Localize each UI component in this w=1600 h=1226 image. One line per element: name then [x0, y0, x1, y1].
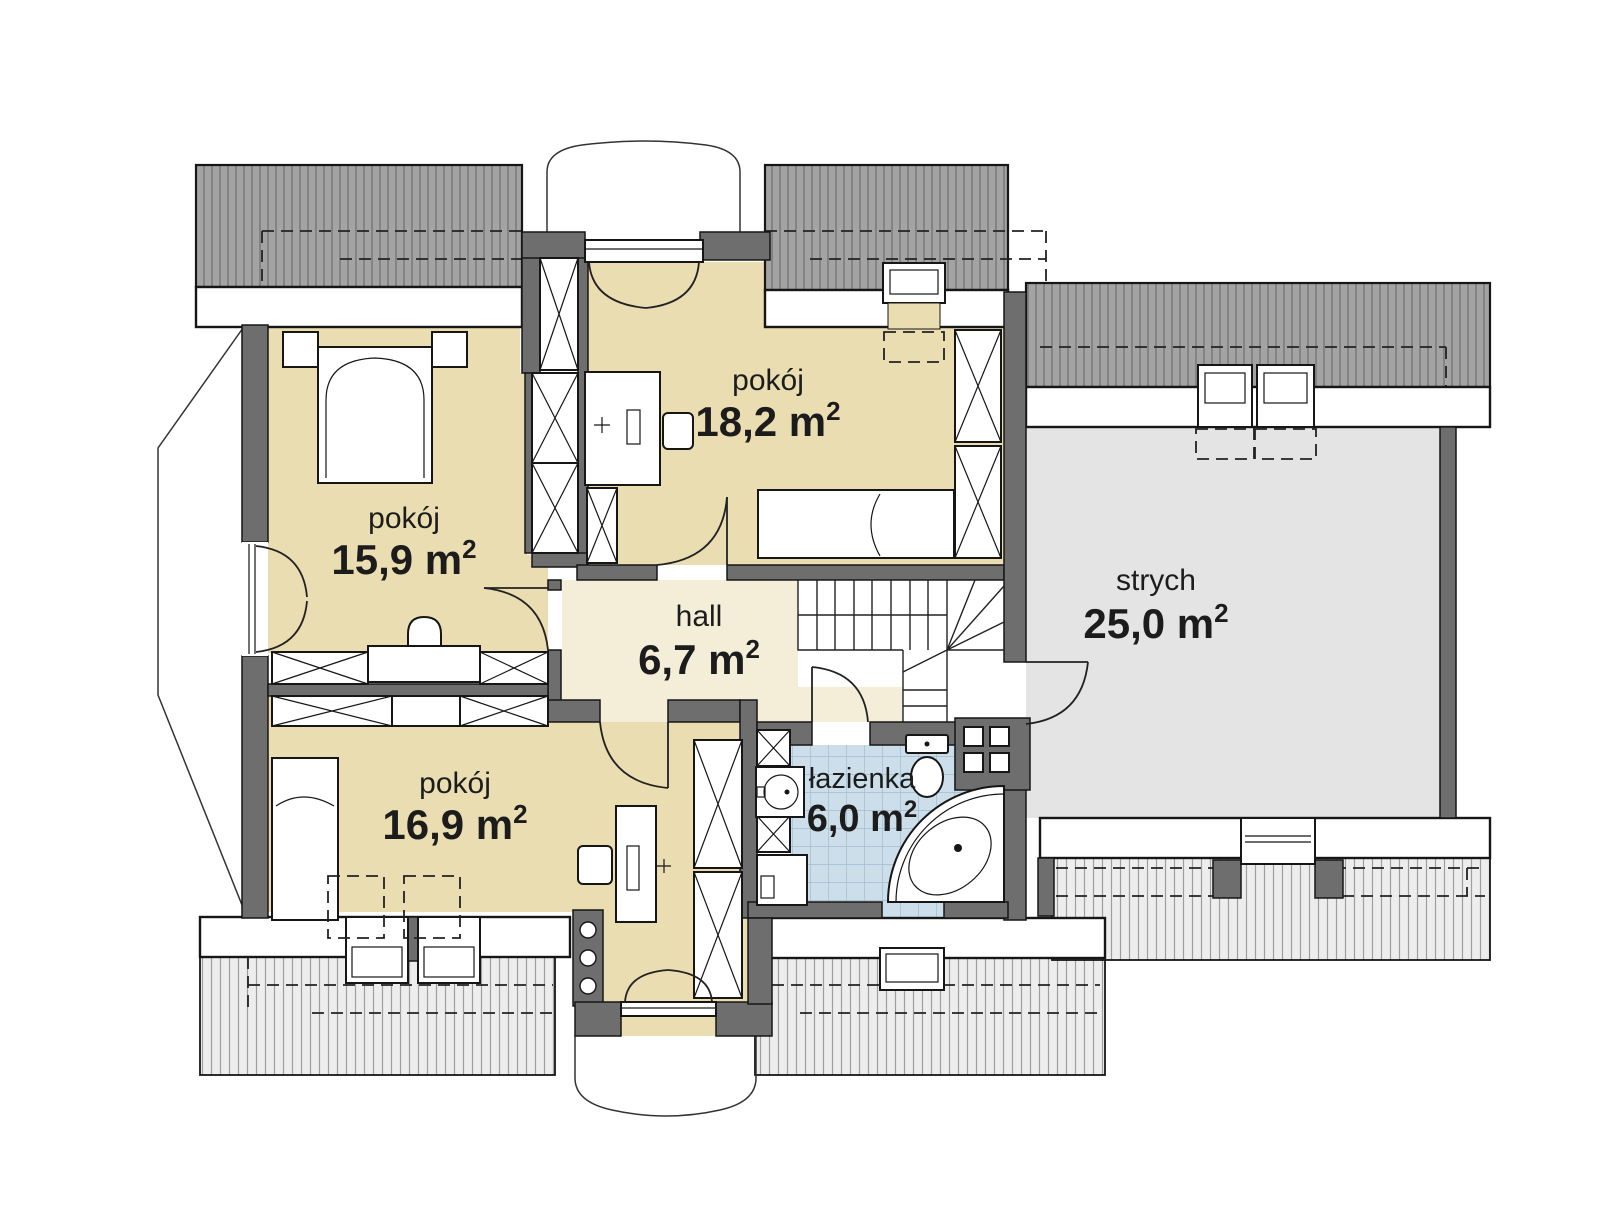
nightstand-right — [432, 332, 467, 367]
wall-attic-right — [1440, 427, 1456, 818]
wardrobe-cell — [460, 696, 548, 726]
room-16-9-area: 16,9 m2 — [382, 799, 527, 848]
sink — [756, 767, 804, 817]
nightstand-left — [283, 332, 318, 367]
wardrobe-cell — [694, 740, 742, 868]
bathroom-skylight — [880, 948, 944, 990]
bathroom-area: 6,0 m2 — [807, 796, 918, 840]
side-roof-outline — [158, 328, 246, 915]
wall-between-bedrooms — [268, 684, 548, 696]
floor-plan-svg: pokój 15,9 m2 pokój 18,2 m2 pokój 16,9 m… — [0, 0, 1600, 1226]
balcony-pier-right — [716, 1002, 772, 1036]
balcony-pier-left — [575, 1002, 621, 1036]
skylight-2 — [418, 917, 480, 983]
balcony-top — [547, 141, 740, 232]
wall-left-upper — [242, 325, 268, 542]
wardrobe-cell — [272, 652, 368, 684]
skylight-1 — [346, 917, 408, 983]
wall-header-left-of-balcony — [522, 232, 585, 260]
wardrobe-shelf — [392, 696, 460, 726]
wardrobe-cell — [694, 872, 742, 998]
wall-header-right-of-balcony — [700, 232, 770, 260]
roof-bottom-right — [1052, 858, 1490, 960]
wardrobe-cell — [955, 330, 1001, 442]
wall-hall-top-right — [727, 565, 1004, 580]
hall-name: hall — [676, 600, 723, 633]
chimney-flues — [580, 922, 596, 994]
wardrobe-cell — [757, 816, 790, 852]
window-left — [242, 542, 268, 656]
wardrobe-cell — [480, 652, 548, 684]
bathroom-name: łazienka — [809, 763, 916, 795]
attic-bottom-window — [1241, 818, 1315, 864]
wardrobe-cell — [757, 730, 790, 766]
wall-left-lower — [242, 656, 268, 918]
attic-area: 25,0 m2 — [1083, 598, 1228, 647]
wardrobe-cell — [532, 463, 578, 553]
wardrobe-cell — [587, 488, 617, 563]
floor-plan: pokój 15,9 m2 pokój 18,2 m2 pokój 16,9 m… — [0, 0, 1600, 1226]
room-15-9-name: pokój — [368, 502, 440, 535]
double-bed — [318, 347, 432, 483]
wall-hall-top-left — [577, 565, 657, 580]
room-15-9-area: 15,9 m2 — [331, 534, 476, 583]
room-18-2-area: 18,2 m2 — [695, 396, 840, 445]
wall-attic-left-upper — [1004, 292, 1026, 662]
roof-top-left — [196, 165, 522, 287]
room-16-9-name: pokój — [419, 767, 491, 800]
eaves-band-top-left — [196, 287, 522, 327]
wardrobe-cell — [540, 258, 578, 370]
wardrobe-cell — [955, 446, 1001, 558]
wardrobe-cell — [272, 696, 392, 726]
single-bed-room-18-2 — [758, 490, 954, 558]
balcony-bottom — [575, 1036, 756, 1116]
wardrobe-cell — [532, 373, 578, 463]
washing-machine — [757, 855, 807, 905]
room-18-2-name: pokój — [732, 364, 804, 397]
balcony-door-top-sill — [585, 240, 703, 262]
hall-area: 6,7 m2 — [638, 634, 760, 683]
attic-name: strych — [1116, 564, 1196, 597]
balcony-door-bottom-sill — [621, 1002, 716, 1016]
